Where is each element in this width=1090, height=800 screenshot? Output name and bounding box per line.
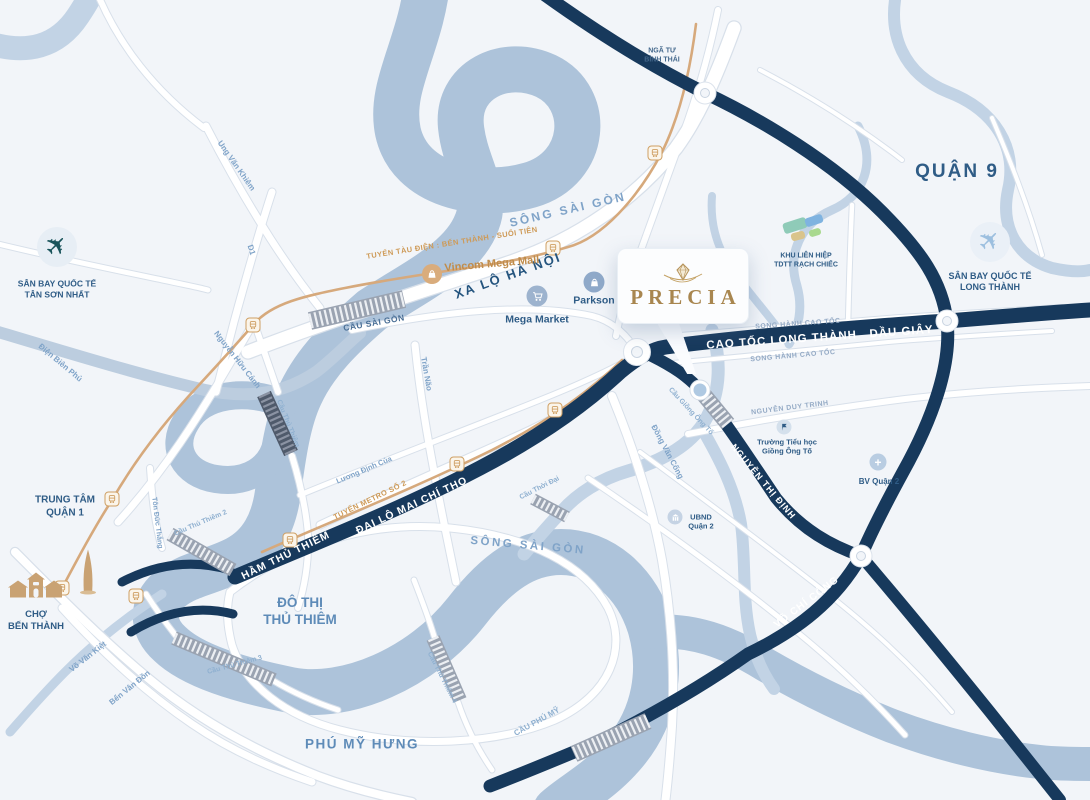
airport-halo [970, 222, 1010, 262]
an-phu-roundabout [624, 339, 651, 366]
metro-station-icon [246, 318, 261, 333]
metro-station-icon [546, 241, 561, 256]
parkson-icon [584, 272, 605, 293]
binh-thai-roundabout [694, 82, 716, 104]
project-brand-name: PRECIA [625, 285, 741, 310]
mai-chi-tho-cao-toc-path [235, 310, 1090, 577]
mega-market-icon [527, 286, 548, 307]
metro-station-icon [450, 457, 465, 472]
metro-station-icon [283, 533, 298, 548]
precia-location-map: + ✈ ✈ QUẬN 9 TRUNG TÂM QUẬN 1 ĐÔ THỊ THỦ… [0, 0, 1090, 800]
metro-station-icon [129, 589, 144, 604]
metro-station-icon [105, 492, 120, 507]
hospital-cross-icon: + [870, 454, 887, 471]
sports-complex-illustration [777, 212, 835, 250]
ben-nghe-channel [10, 594, 162, 732]
ben-thanh-market-icon [8, 573, 64, 606]
airport-halo [37, 227, 77, 267]
ring-east-roundabout [936, 310, 958, 332]
school-icon [777, 420, 792, 435]
vincom-mall-icon [422, 264, 442, 284]
diamond-icon [659, 262, 707, 284]
map-canvas [0, 0, 1090, 800]
metro-station-icon [648, 146, 663, 161]
metro-station-icon [548, 403, 563, 418]
nguyen-thi-dinh-path [652, 356, 861, 556]
precia-callout-card: PRECIA [617, 248, 749, 324]
vo-chi-cong-roundabout [850, 545, 872, 567]
project-location-dot [690, 380, 710, 400]
landmark-tower-icon [78, 549, 98, 600]
government-building-icon [668, 510, 683, 525]
